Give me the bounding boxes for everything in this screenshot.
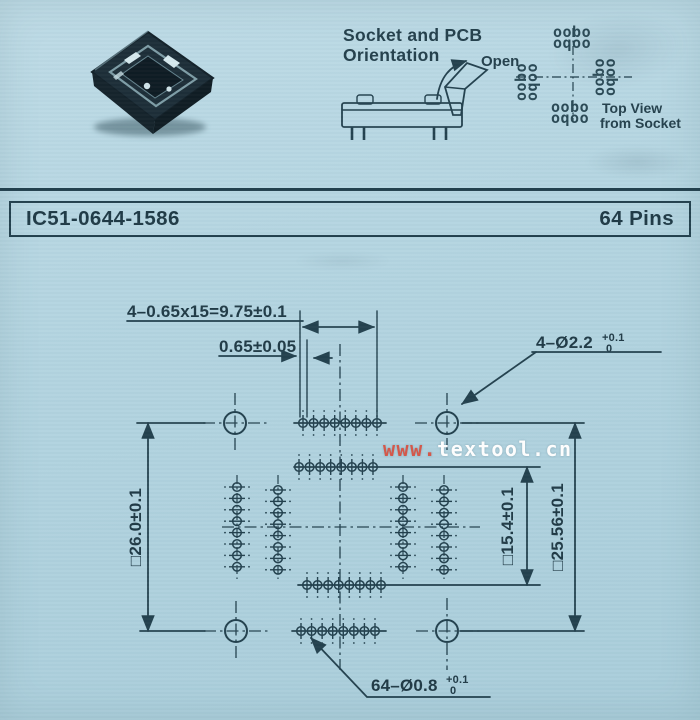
pin-hole (224, 509, 226, 511)
pin-hole (380, 572, 382, 574)
pin-hole (390, 532, 392, 534)
svg-text:0: 0 (606, 343, 612, 355)
pin-hole (224, 566, 226, 568)
pin-hole (351, 478, 353, 480)
pin-hole (323, 410, 325, 412)
pin-hole (431, 501, 433, 503)
pin-hole (455, 489, 457, 491)
pin-hole (327, 572, 329, 574)
pin-hole (455, 558, 457, 560)
pin-hole (390, 520, 392, 522)
pin-hole (224, 486, 226, 488)
pin-hole (455, 512, 457, 514)
pin-hole (306, 596, 308, 598)
pin-hole (390, 543, 392, 545)
pin-hole (359, 572, 361, 574)
top-view-label-line1: Top View (602, 100, 662, 116)
pin-hole (248, 498, 250, 500)
svg-text:oqoo: oqoo (553, 34, 591, 52)
part-number: IC51-0644-1586 (26, 207, 180, 231)
pin-hole (351, 454, 353, 456)
pin-hole (334, 434, 336, 436)
pin-hole (330, 454, 332, 456)
pin-hole (248, 543, 250, 545)
pin-hole (289, 535, 291, 537)
watermark-prefix: www. (383, 437, 437, 461)
pin-hole (248, 532, 250, 534)
pin-hole (248, 486, 250, 488)
pin-hole (414, 566, 416, 568)
pin-hole (265, 558, 267, 560)
pin-hole (374, 642, 376, 644)
pin-hole (289, 569, 291, 571)
pin-hole (355, 434, 357, 436)
pin-hole (321, 618, 323, 620)
pin-hole (248, 509, 250, 511)
open-lever (445, 63, 487, 115)
pin-hole (323, 434, 325, 436)
pin-hole (248, 566, 250, 568)
pin-hole (414, 486, 416, 488)
pin-hole (455, 569, 457, 571)
orientation-title-line1: Socket and PCB (343, 25, 482, 45)
pin-hole (370, 572, 372, 574)
pin-hole (338, 596, 340, 598)
svg-text:0: 0 (450, 685, 456, 697)
pin-hole (224, 532, 226, 534)
dimension-drawing: 4–0.65x15=9.75±0.1 0.65±0.05 4–Ø2.2 +0.1… (0, 280, 700, 720)
pin-hole (319, 454, 321, 456)
pin-hole (321, 642, 323, 644)
pin-hole (334, 410, 336, 412)
pin-hole (302, 410, 304, 412)
pin-hole (327, 596, 329, 598)
pin-hole (348, 596, 350, 598)
pin-hole (390, 509, 392, 511)
pin-hole (340, 478, 342, 480)
pin-hole (362, 454, 364, 456)
pin-hole (248, 555, 250, 557)
pin-cluster-top: oobo oqoo (553, 23, 591, 52)
svg-text:4–Ø2.2: 4–Ø2.2 (536, 333, 593, 352)
pin-hole (372, 478, 374, 480)
pin-hole (431, 523, 433, 525)
pin-hole (300, 642, 302, 644)
orientation-title-line2: Orientation (343, 45, 440, 65)
pin-hole (289, 523, 291, 525)
pin-hole (362, 478, 364, 480)
horizontal-rule (0, 188, 700, 191)
pin-hole (431, 489, 433, 491)
pin-hole (265, 512, 267, 514)
watermark: www.textool.cn (383, 437, 573, 461)
pin-hole (431, 546, 433, 548)
pin-hole (298, 478, 300, 480)
pin-hole (455, 546, 457, 548)
scanned-datasheet-page: Socket and PCB Orientation Open oobo oqo… (0, 0, 700, 720)
svg-text:oqoo: oqoo (523, 63, 541, 101)
pin-cluster-bottom: oobo oqoo (551, 98, 589, 127)
pin-hole (364, 642, 366, 644)
dim-corner-holes: 4–Ø2.2 +0.1 0 (462, 332, 661, 404)
pin-hole (265, 569, 267, 571)
pin-hole (390, 555, 392, 557)
pin-hole (353, 618, 355, 620)
pin-pattern-top-view: oobo oqoo oobo oqoo oobo oqoo oobo oqoo … (512, 23, 681, 131)
dim-inner-row-span: □15.4±0.1 (498, 467, 527, 585)
pin-hole (414, 543, 416, 545)
svg-text:0.65±0.05: 0.65±0.05 (219, 337, 296, 356)
pin-hole (344, 410, 346, 412)
pin-hole (302, 434, 304, 436)
svg-text:oqoo: oqoo (551, 109, 589, 127)
pin-hole (431, 535, 433, 537)
socket-side-view (342, 63, 487, 140)
pin-hole (376, 410, 378, 412)
svg-text:4–0.65x15=9.75±0.1: 4–0.65x15=9.75±0.1 (127, 302, 287, 321)
pin-hole (289, 546, 291, 548)
pin-hole (455, 535, 457, 537)
pin-hole (374, 618, 376, 620)
pin-hole (359, 596, 361, 598)
top-view-label-line2: from Socket (600, 115, 681, 131)
socket-body-photo (92, 31, 213, 134)
pin-hole (289, 501, 291, 503)
dim-body-size: □26.0±0.1 (126, 423, 148, 631)
pin-hole (313, 434, 315, 436)
pin-hole (319, 478, 321, 480)
pin-hole (390, 566, 392, 568)
scan-smudge (295, 252, 390, 270)
pin-hole (344, 434, 346, 436)
dim-pin-pitch: 0.65±0.05 (219, 337, 332, 358)
pin-hole (311, 618, 313, 620)
pin-hole (390, 498, 392, 500)
pin-hole (455, 523, 457, 525)
pin-hole (414, 509, 416, 511)
svg-text:□26.0±0.1: □26.0±0.1 (126, 488, 145, 566)
pin-hole (224, 520, 226, 522)
pin-hole (366, 410, 368, 412)
orientation-diagram: Socket and PCB Orientation Open oobo oqo… (330, 15, 700, 155)
pin-hole (455, 501, 457, 503)
dim-pin-holes: 64–Ø0.8 +0.1 0 (311, 638, 490, 697)
pin-hole (431, 512, 433, 514)
svg-text:64–Ø0.8: 64–Ø0.8 (371, 676, 438, 695)
pin-hole (289, 489, 291, 491)
socket-photo (55, 10, 245, 150)
pin-hole (309, 454, 311, 456)
pin-hole (265, 535, 267, 537)
pin-cluster-left: oobo oqoo (512, 63, 541, 101)
pin-hole (366, 434, 368, 436)
pin-hole (332, 618, 334, 620)
pin-hole (265, 523, 267, 525)
pin-hole (342, 642, 344, 644)
svg-text:oqoo: oqoo (601, 58, 619, 96)
pin-hole (306, 572, 308, 574)
pin-hole (313, 410, 315, 412)
part-header: IC51-0644-1586 64 Pins (9, 201, 691, 237)
pin-count: 64 Pins (599, 207, 674, 231)
pin-hole (390, 486, 392, 488)
watermark-domain: textool.cn (437, 437, 572, 461)
pin-hole (311, 642, 313, 644)
pin-hole (224, 543, 226, 545)
pin-hole (342, 618, 344, 620)
pin-cluster-right: oobo oqoo (590, 58, 619, 96)
pin-hole (265, 546, 267, 548)
pin-hole (414, 555, 416, 557)
pin-hole (298, 454, 300, 456)
pin-hole (414, 520, 416, 522)
pin-hole (431, 569, 433, 571)
pin-hole (338, 572, 340, 574)
pin-hole (372, 454, 374, 456)
pin-hole (309, 478, 311, 480)
pin-hole (355, 410, 357, 412)
pin-hole (353, 642, 355, 644)
pin-hole (289, 558, 291, 560)
pin-hole (248, 520, 250, 522)
pin-hole (265, 501, 267, 503)
svg-text:□15.4±0.1: □15.4±0.1 (498, 487, 517, 565)
pin-hole (431, 558, 433, 560)
pin-hole (224, 555, 226, 557)
svg-text:□25.56±0.1: □25.56±0.1 (548, 483, 567, 571)
pin-hole (224, 498, 226, 500)
pin-hole (289, 512, 291, 514)
pin-hole (317, 596, 319, 598)
pin-hole (370, 596, 372, 598)
pin-hole (380, 596, 382, 598)
pin-hole (340, 454, 342, 456)
pin-hole (364, 618, 366, 620)
corner-holes (203, 393, 481, 670)
pin-hole (330, 478, 332, 480)
pin-hole (300, 618, 302, 620)
pin-hole (414, 532, 416, 534)
pin-hole (414, 498, 416, 500)
pin-hole (317, 572, 319, 574)
pin-hole (376, 434, 378, 436)
pin-hole (265, 489, 267, 491)
pin-hole (332, 642, 334, 644)
pin-hole (348, 572, 350, 574)
